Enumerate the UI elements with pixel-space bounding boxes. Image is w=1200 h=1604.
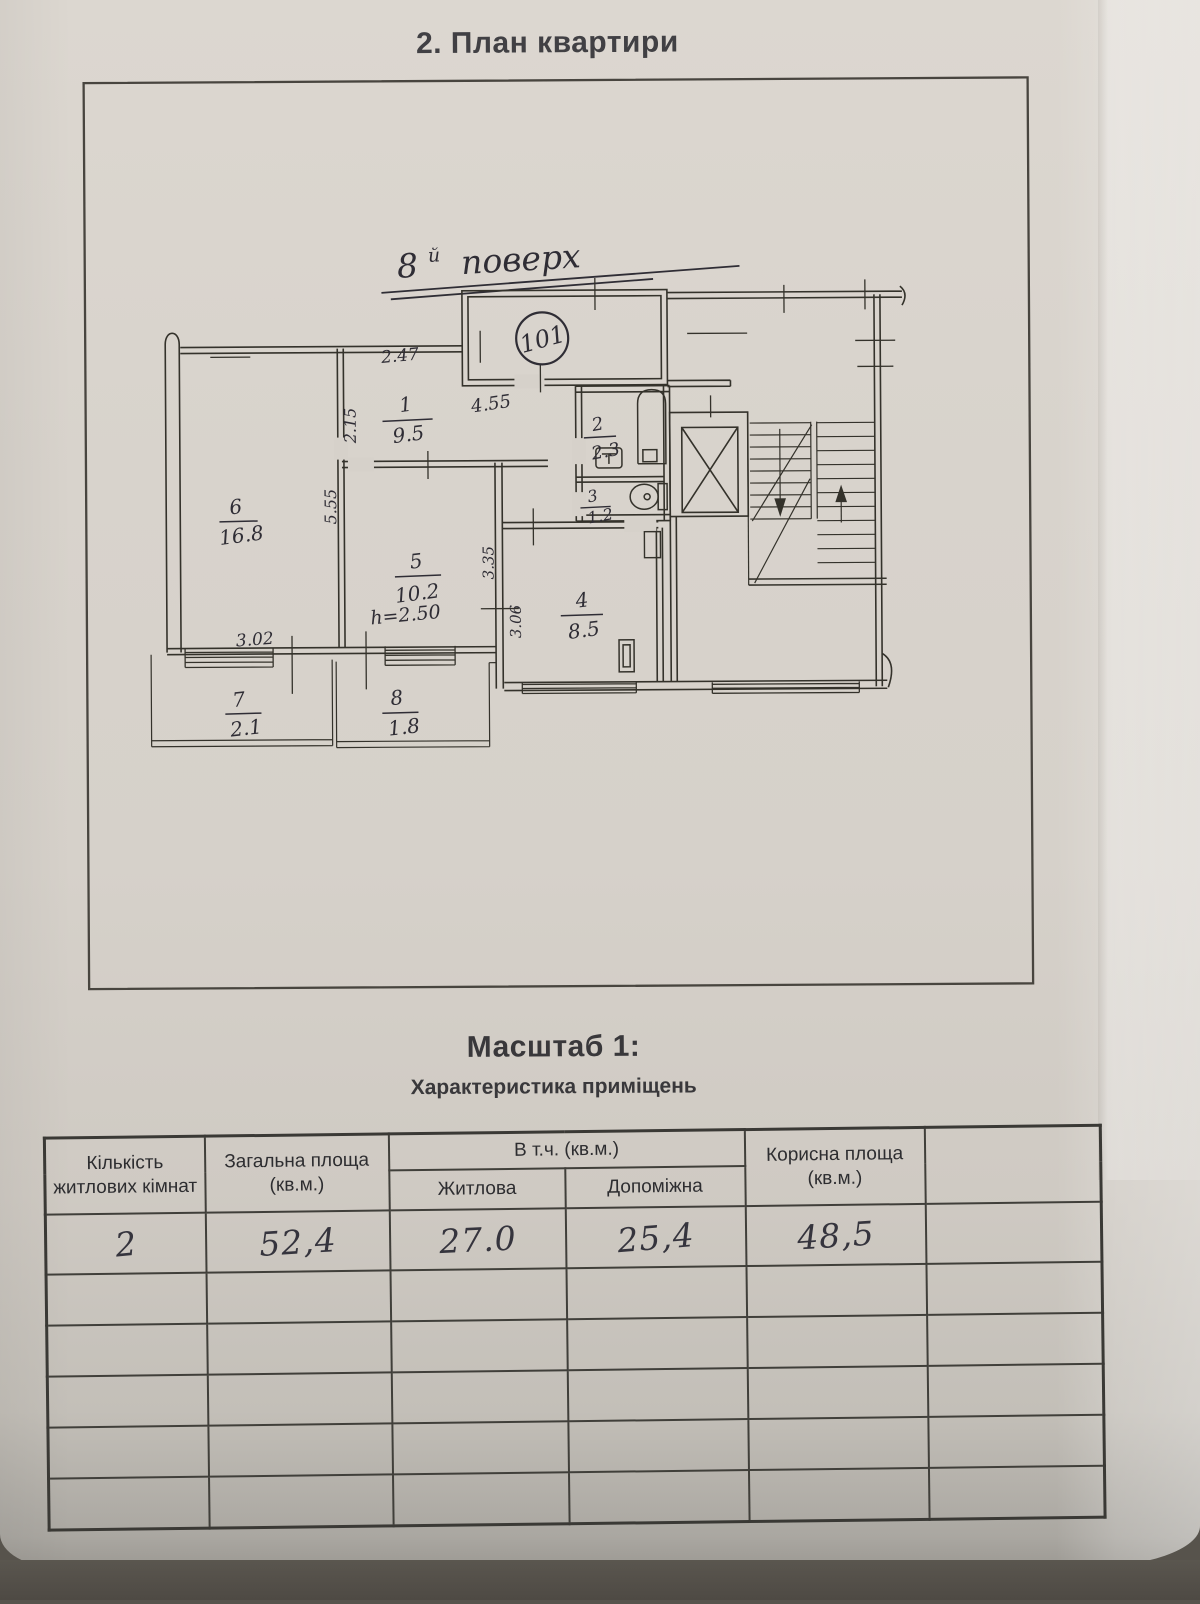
- empty-cell: [207, 1372, 392, 1425]
- scale-heading: Масштаб 1:: [1, 1027, 1105, 1068]
- header-extra: [924, 1125, 1101, 1204]
- svg-text:8.5: 8.5: [566, 616, 601, 644]
- dim-room6-depth: 5.55: [321, 489, 340, 525]
- empty-cell: [49, 1477, 210, 1530]
- empty-cell: [746, 1264, 927, 1317]
- table-title: Характеристика приміщень: [2, 1072, 1106, 1103]
- empty-cell: [566, 1266, 747, 1319]
- empty-cell: [390, 1268, 567, 1321]
- svg-text:7: 7: [231, 687, 247, 712]
- kitchen-door-leaf: [644, 532, 660, 558]
- svg-text:2.1: 2.1: [228, 714, 263, 741]
- dim-wall-left: 2.15: [341, 408, 360, 445]
- elevator-shaft: [670, 412, 749, 516]
- floor-plan-drawing: 8 й поверх: [76, 67, 1042, 998]
- empty-cell: [927, 1364, 1104, 1417]
- header-including-group: В т.ч. (кв.м.): [388, 1130, 744, 1171]
- apartment-number: 101: [517, 320, 569, 359]
- empty-cell: [568, 1470, 749, 1524]
- svg-text:1: 1: [398, 392, 414, 417]
- room-2-label: 2 2.3: [580, 411, 622, 465]
- empty-cell: [567, 1317, 748, 1370]
- header-auxiliary: Допоміжна: [565, 1166, 745, 1208]
- dim-hall-width: 4.55: [469, 391, 513, 418]
- kitchen-vent-box: [619, 640, 634, 672]
- empty-cell: [928, 1415, 1105, 1468]
- svg-text:8: 8: [389, 685, 404, 710]
- empty-cell: [927, 1313, 1104, 1366]
- page-title: 2. План квартири: [0, 23, 1099, 64]
- floor-label: 8 й поверх: [378, 213, 740, 300]
- dim-corridor-width: 2.47: [379, 344, 420, 368]
- document-content: 2. План квартири 8 й поверх: [0, 0, 1200, 1604]
- dim-kitchen-depth-a: 3.35: [479, 546, 497, 580]
- svg-text:1.8: 1.8: [387, 713, 421, 740]
- empty-cell: [392, 1421, 569, 1474]
- empty-cell: [568, 1419, 749, 1472]
- room-7-label: 7 2.1: [223, 685, 265, 742]
- svg-text:3: 3: [586, 486, 599, 507]
- header-rooms-count: Кількість житлових кімнат: [44, 1136, 205, 1214]
- empty-cell: [46, 1273, 207, 1326]
- bathtub-drain: [643, 450, 657, 462]
- header-living: Житлова: [389, 1168, 565, 1210]
- empty-cell: [747, 1315, 928, 1368]
- empty-cell: [567, 1368, 748, 1421]
- room-6-label: 6 16.8: [214, 492, 265, 550]
- bathtub-icon: [637, 390, 665, 464]
- empty-cell: [926, 1262, 1103, 1315]
- value-rooms-count: 2: [45, 1213, 206, 1275]
- svg-text:9.5: 9.5: [391, 420, 426, 448]
- svg-text:1.2: 1.2: [586, 504, 614, 527]
- value-living-area: 27.0: [389, 1208, 566, 1270]
- premises-table: Кількість житлових кімнат Загальна площа…: [43, 1124, 1107, 1532]
- empty-cell: [208, 1423, 393, 1476]
- empty-cell: [47, 1375, 208, 1428]
- empty-cell: [748, 1468, 929, 1522]
- dim-kitchen-depth-b: 3.06: [507, 604, 525, 638]
- room-8-label: 8 1.8: [379, 683, 421, 741]
- ceiling-height-note: h=2.50: [369, 601, 441, 629]
- svg-text:6: 6: [228, 494, 244, 519]
- value-total-area: 52,4: [205, 1210, 390, 1272]
- toilet-icon: [630, 484, 667, 510]
- empty-cell: [209, 1474, 394, 1528]
- empty-cell: [391, 1370, 568, 1423]
- empty-cell: [207, 1321, 392, 1374]
- windows: [185, 643, 859, 696]
- room-4-label: 4 8.5: [558, 586, 607, 645]
- floor-number: 8: [396, 246, 419, 286]
- empty-cell: [928, 1466, 1105, 1520]
- empty-cell: [206, 1270, 391, 1323]
- value-useful-area: 48,5: [745, 1204, 926, 1266]
- header-useful-area: Корисна площа (кв.м.): [744, 1127, 925, 1206]
- room-1-label: 1 9.5: [379, 389, 435, 449]
- dim-room6-width: 3.02: [235, 629, 274, 652]
- empty-cell: [393, 1472, 570, 1526]
- svg-text:8 й поверх: 8 й поверх: [395, 222, 582, 286]
- floor-word: поверх: [460, 236, 582, 282]
- header-total-area: Загальна площа (кв.м.): [204, 1134, 389, 1213]
- value-auxiliary-area: 25,4: [565, 1206, 746, 1268]
- room-5-label: 5 10.2: [389, 546, 444, 608]
- apartment-number-badge: 101: [516, 312, 568, 364]
- svg-text:2.3: 2.3: [589, 439, 622, 465]
- svg-text:16.8: 16.8: [218, 520, 265, 549]
- empty-cell: [391, 1319, 568, 1372]
- svg-text:4: 4: [573, 587, 590, 613]
- floor-suffix: й: [427, 244, 441, 267]
- svg-text:2: 2: [589, 413, 605, 436]
- svg-text:5: 5: [408, 548, 424, 573]
- empty-cell: [47, 1324, 208, 1377]
- empty-cell: [748, 1417, 929, 1470]
- staircase: [748, 411, 887, 585]
- empty-cell: [48, 1426, 209, 1479]
- empty-cell: [747, 1366, 928, 1419]
- value-extra: [925, 1202, 1102, 1264]
